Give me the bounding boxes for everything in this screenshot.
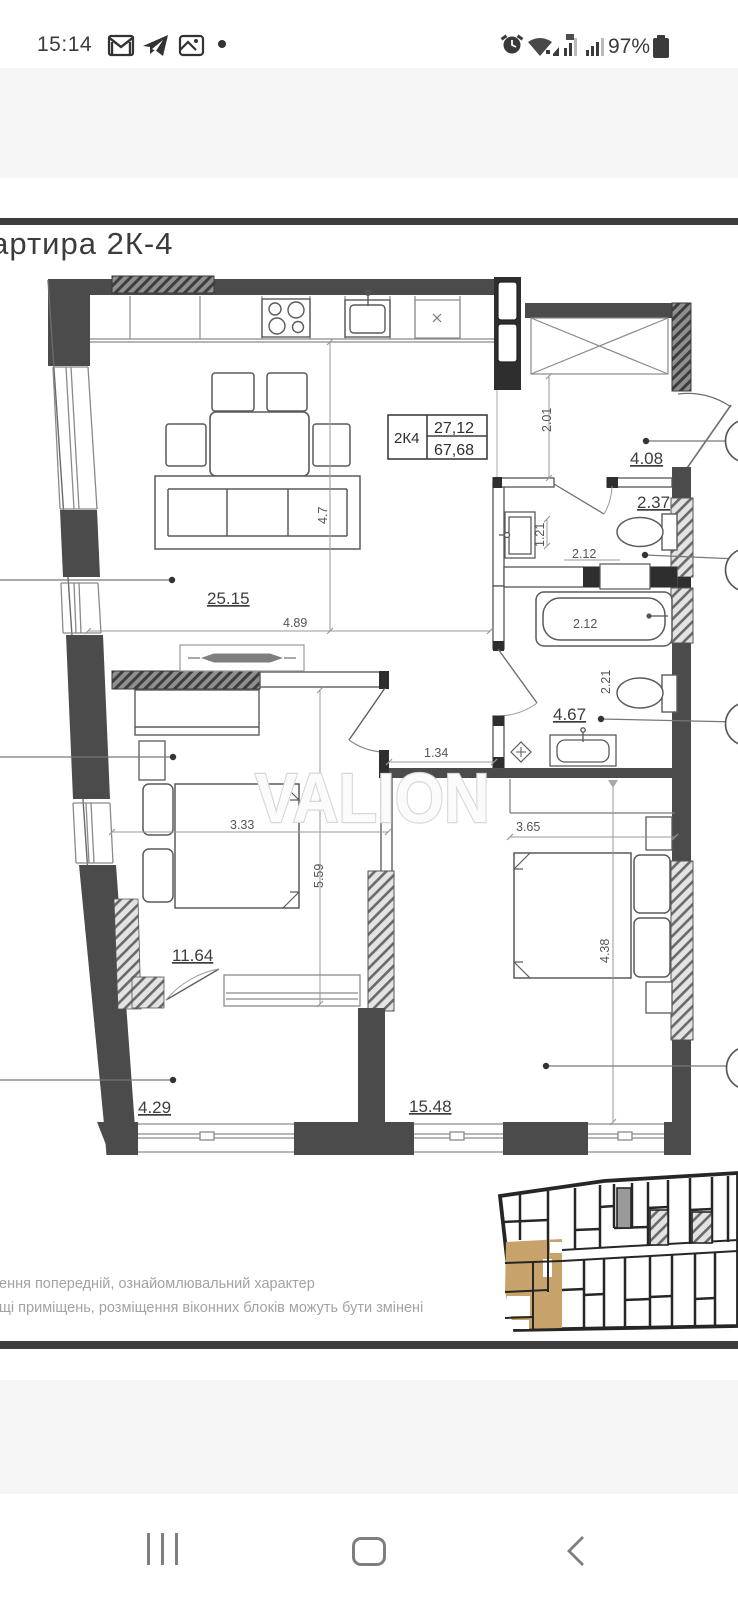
svg-text:5.59: 5.59	[312, 864, 326, 888]
svg-text:2.12: 2.12	[573, 617, 597, 631]
svg-text:2.37: 2.37	[637, 493, 670, 512]
svg-text:27,12: 27,12	[434, 420, 474, 437]
svg-text:4.38: 4.38	[598, 939, 612, 963]
svg-text:1.34: 1.34	[424, 746, 448, 760]
svg-text:2К4: 2К4	[394, 430, 419, 447]
svg-text:15.48: 15.48	[409, 1097, 452, 1116]
svg-text:11.64: 11.64	[172, 946, 213, 965]
svg-text:25.15: 25.15	[207, 589, 250, 608]
svg-text:4.67: 4.67	[553, 705, 586, 724]
svg-text:4.89: 4.89	[283, 616, 307, 630]
svg-text:1.21: 1.21	[533, 523, 547, 547]
svg-text:2.01: 2.01	[540, 408, 554, 432]
svg-text:3.65: 3.65	[516, 820, 540, 834]
svg-text:VALION: VALION	[255, 760, 490, 838]
svg-text:4.7: 4.7	[316, 507, 330, 524]
svg-text:2.21: 2.21	[599, 670, 613, 694]
svg-text:4.08: 4.08	[630, 449, 663, 468]
svg-text:3.33: 3.33	[230, 818, 254, 832]
svg-text:67,68: 67,68	[434, 442, 474, 459]
svg-text:4.29: 4.29	[138, 1098, 171, 1117]
svg-text:2.12: 2.12	[572, 547, 596, 561]
